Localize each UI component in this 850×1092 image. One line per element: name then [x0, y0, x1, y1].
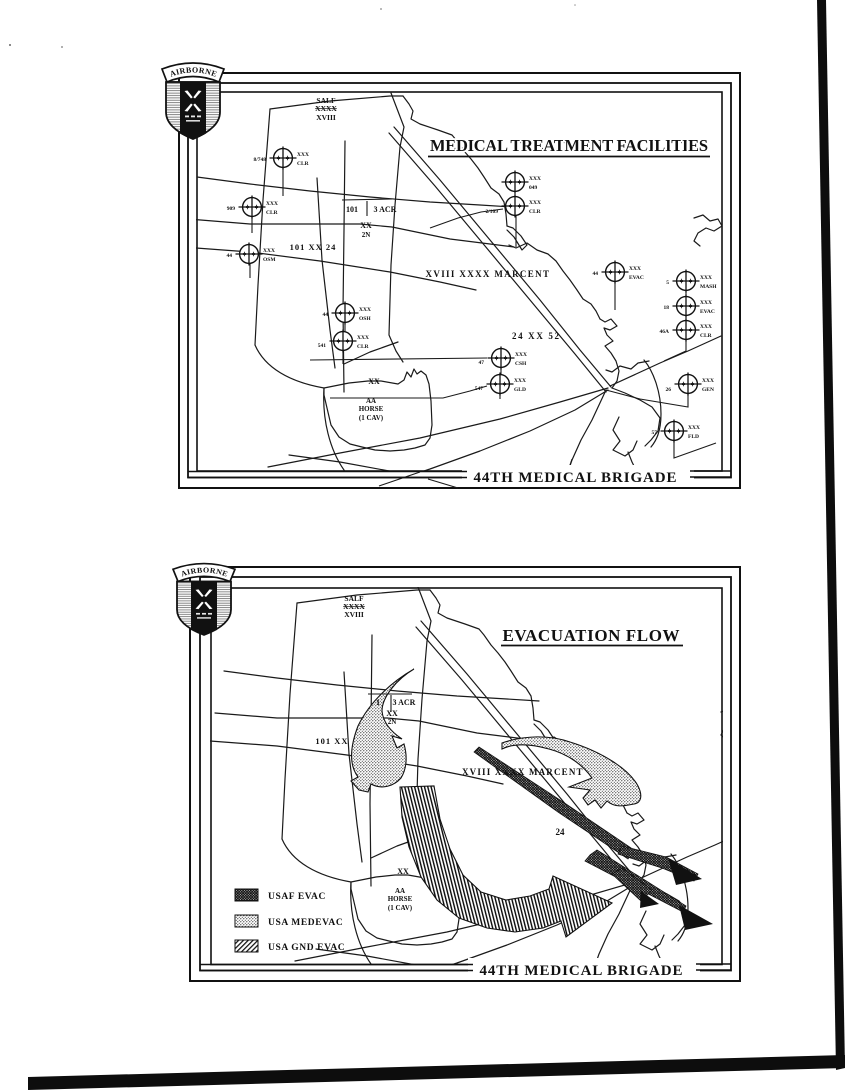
svg-text:44TH MEDICAL BRIGADE: 44TH MEDICAL BRIGADE — [474, 470, 677, 486]
svg-text:26: 26 — [666, 387, 672, 393]
svg-text:47: 47 — [479, 360, 485, 366]
svg-text:XVIII: XVIII — [316, 113, 336, 122]
svg-text:44TH MEDICAL BRIGADE: 44TH MEDICAL BRIGADE — [480, 963, 683, 979]
svg-text:18: 18 — [664, 305, 670, 311]
svg-text:XXX: XXX — [266, 201, 278, 207]
svg-text:OSH: OSH — [359, 316, 371, 322]
svg-text:24 XX 52: 24 XX 52 — [512, 331, 560, 341]
svg-text:8/748: 8/748 — [253, 157, 266, 163]
svg-text:XXX: XXX — [357, 335, 369, 341]
svg-text:XXX: XXX — [359, 307, 371, 313]
svg-text:FLD: FLD — [688, 434, 699, 440]
svg-text:24: 24 — [556, 827, 566, 837]
svg-text:EVAC: EVAC — [700, 309, 715, 315]
svg-text:CLR: CLR — [357, 344, 370, 350]
svg-text:2N: 2N — [388, 718, 397, 726]
svg-text:44: 44 — [593, 271, 599, 277]
svg-text:541: 541 — [318, 343, 327, 349]
svg-text:547: 547 — [475, 386, 484, 392]
svg-text:USA MEDEVAC: USA MEDEVAC — [268, 918, 343, 928]
svg-text:XXX: XXX — [700, 324, 712, 330]
svg-text:XVIII XXXX MARCENT: XVIII XXXX MARCENT — [426, 269, 551, 279]
svg-text:XXXX: XXXX — [315, 104, 337, 113]
svg-text:1: 1 — [376, 698, 380, 707]
svg-text:XX: XX — [360, 221, 372, 230]
svg-text:CSH: CSH — [515, 361, 527, 367]
svg-text:XXX: XXX — [515, 352, 527, 358]
svg-text:CLR: CLR — [700, 333, 713, 339]
svg-text:909: 909 — [227, 206, 236, 212]
svg-text:XX: XX — [397, 867, 409, 876]
svg-text:XXX: XXX — [529, 176, 541, 182]
svg-text:2N: 2N — [362, 231, 371, 239]
svg-text:049: 049 — [529, 185, 538, 191]
svg-text:XXX: XXX — [629, 266, 641, 272]
svg-text:101 XX 24: 101 XX 24 — [290, 242, 337, 252]
svg-text:44: 44 — [227, 253, 233, 259]
svg-text:101: 101 — [346, 205, 358, 214]
svg-text:CLR: CLR — [297, 161, 310, 167]
svg-text:USAF EVAC: USAF EVAC — [268, 892, 326, 902]
svg-text:MASH: MASH — [700, 284, 717, 290]
svg-text:MEDICAL TREATMENT FACILITIES: MEDICAL TREATMENT FACILITIES — [430, 136, 708, 155]
svg-text:XVIII XXXX MARCENT: XVIII XXXX MARCENT — [462, 767, 584, 777]
svg-text:XXX: XXX — [700, 275, 712, 281]
svg-text:(1 CAV): (1 CAV) — [359, 414, 384, 422]
svg-text:CLR: CLR — [529, 209, 542, 215]
svg-text:XXX: XXX — [514, 378, 526, 384]
svg-text:101 XX: 101 XX — [315, 736, 348, 746]
svg-text:46A: 46A — [660, 329, 670, 335]
svg-text:3 ACR: 3 ACR — [393, 698, 416, 707]
svg-text:XXX: XXX — [688, 425, 700, 431]
svg-text:AA: AA — [366, 397, 376, 405]
svg-text:XX: XX — [368, 377, 380, 386]
svg-text:OSM: OSM — [263, 257, 276, 263]
svg-text:2/109: 2/109 — [485, 209, 498, 215]
svg-text:GEN: GEN — [702, 387, 714, 393]
svg-text:5: 5 — [666, 280, 669, 286]
svg-text:44: 44 — [323, 312, 329, 318]
svg-text:HORSE: HORSE — [388, 895, 413, 903]
svg-text:XXX: XXX — [263, 248, 275, 254]
svg-text:CLR: CLR — [266, 210, 279, 216]
svg-text:XXX: XXX — [529, 200, 541, 206]
svg-text:EVAC: EVAC — [629, 275, 644, 281]
svg-text:XXX: XXX — [297, 152, 309, 158]
svg-text:HORSE: HORSE — [359, 405, 384, 413]
svg-text:57: 57 — [652, 430, 658, 436]
svg-text:AA: AA — [395, 887, 405, 895]
svg-text:XXX: XXX — [702, 378, 714, 384]
svg-text:(1 CAV): (1 CAV) — [388, 904, 413, 912]
svg-text:3 ACR: 3 ACR — [374, 205, 397, 214]
svg-text:GLD: GLD — [514, 387, 526, 393]
svg-text:XXX: XXX — [700, 300, 712, 306]
svg-text:XX: XX — [386, 709, 398, 718]
svg-text:XVIII: XVIII — [344, 610, 364, 619]
svg-text:USA GND EVAC: USA GND EVAC — [268, 943, 345, 953]
svg-text:EVACUATION FLOW: EVACUATION FLOW — [503, 626, 680, 645]
